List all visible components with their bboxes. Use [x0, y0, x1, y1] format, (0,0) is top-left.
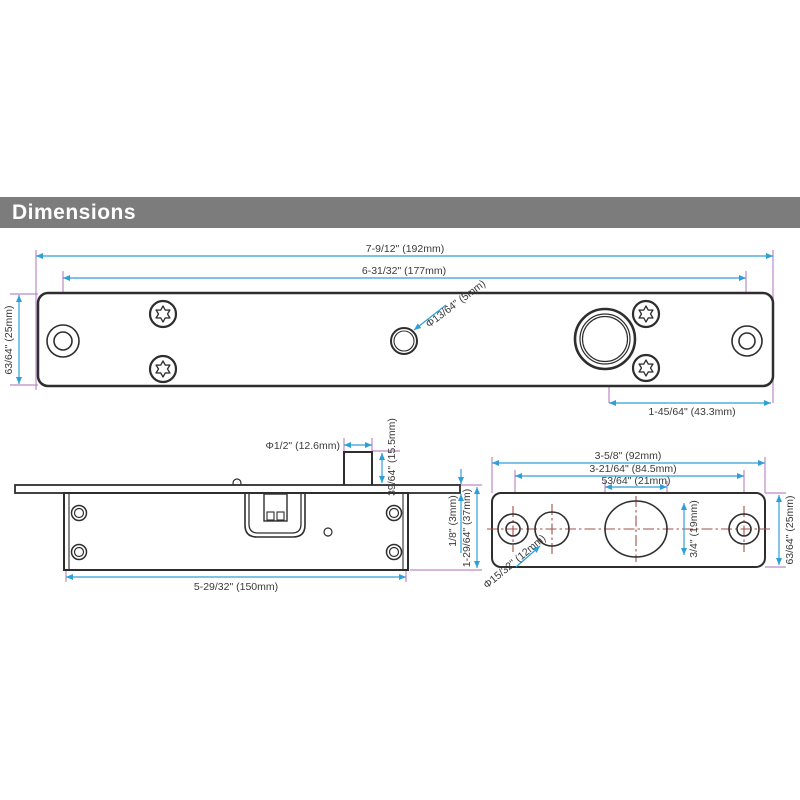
end-view: 3-5/8" (92mm) 3-21/64" (84.5mm) 53/64" (…	[481, 450, 796, 591]
dim-end-hole-spacing: 3-21/64" (84.5mm)	[589, 463, 676, 475]
dim-end-overall-width: 3-5/8" (92mm)	[595, 450, 662, 462]
dim-top-height: 63/64" (25mm)	[3, 305, 15, 374]
dim-bolt-throw: 39/64" (15.5mm)	[386, 418, 398, 496]
dim-plate-thickness: 1/8" (3mm)	[447, 495, 459, 547]
top-view: 7-9/12" (192mm) 6-31/32" (177mm) 63/64" …	[3, 243, 773, 418]
dim-body-depth: 1-29/64" (37mm)	[461, 489, 473, 567]
bolt-cylinder	[344, 452, 372, 488]
dim-top-bolt-offset: 1-45/64" (43.3mm)	[648, 406, 735, 418]
dim-body-length: 5-29/32" (150mm)	[194, 581, 278, 593]
dim-end-height: 63/64" (25mm)	[784, 495, 796, 564]
dim-top-overall-width: 7-9/12" (192mm)	[366, 243, 444, 255]
lock-body	[64, 493, 408, 570]
faceplate-top-view	[38, 293, 773, 386]
dimensions-drawing: 7-9/12" (192mm) 6-31/32" (177mm) 63/64" …	[0, 0, 800, 800]
side-view: Φ1/2" (12.6mm) 39/64" (15.5mm) 1/8" (3mm…	[15, 418, 482, 593]
dim-top-hole-spacing: 6-31/32" (177mm)	[362, 265, 446, 277]
page: Dimensions	[0, 0, 800, 800]
dim-bolt-hole-width: 53/64" (21mm)	[601, 475, 670, 487]
dim-bolt-hole-height: 3/4" (19mm)	[688, 500, 700, 557]
dim-bolt-diameter: Φ1/2" (12.6mm)	[265, 440, 340, 452]
